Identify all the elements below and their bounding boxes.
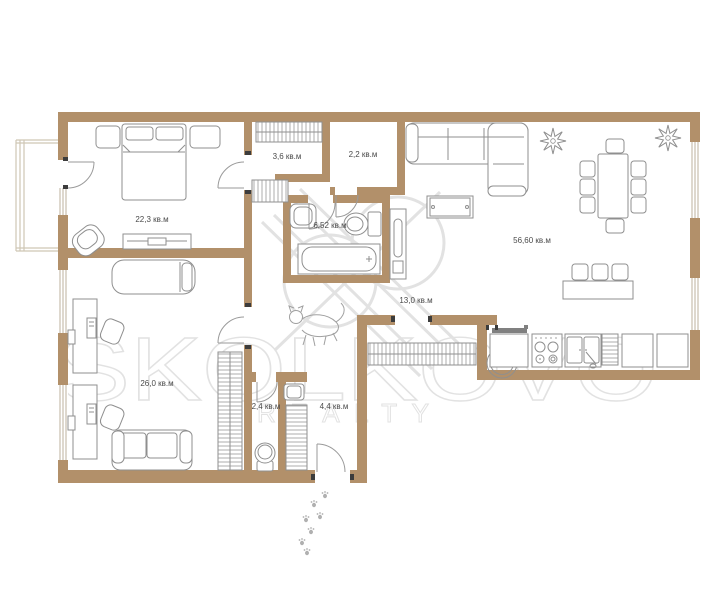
room-label-entry: 4,4 кв.м — [320, 402, 349, 411]
toilet — [344, 212, 381, 236]
window-right-1 — [690, 142, 700, 218]
window-left-1 — [58, 188, 68, 215]
wc-toilet — [255, 443, 275, 471]
bathtub — [298, 244, 380, 274]
dining-table — [598, 154, 628, 218]
bar-stools — [572, 264, 628, 280]
room-label-wardrobe-2: 2,2 кв.м — [349, 150, 378, 159]
bar-counter — [563, 281, 633, 299]
corner-sofa — [406, 123, 528, 196]
paw-prints — [299, 491, 329, 555]
drying-rack — [602, 334, 618, 365]
room-label-wardrobe-1: 3,6 кв.м — [273, 152, 302, 161]
daybed — [112, 260, 195, 294]
room-label-bedroom: 22,3 кв.м — [135, 215, 168, 224]
study-sofa — [112, 430, 192, 470]
window-left-2 — [58, 270, 68, 333]
floor-plan-canvas: SKOLKOVO REALTY — [0, 0, 720, 600]
window-left-3 — [58, 385, 68, 460]
kitchen-cabinet-1 — [622, 334, 653, 367]
entrance-door — [317, 444, 345, 472]
entry-wardrobe — [286, 405, 307, 470]
stove — [532, 334, 562, 367]
room-label-wc: 2,4 кв.м — [252, 402, 281, 411]
floor-plan: SKOLKOVO REALTY — [0, 0, 720, 600]
balcony — [16, 140, 58, 251]
pouf-right — [190, 126, 220, 148]
room-label-study: 26,0 кв.м — [140, 379, 173, 388]
fridge — [490, 325, 528, 367]
entry-sink — [284, 384, 304, 400]
kitchen-cabinet-2 — [657, 334, 688, 367]
window-right-2 — [690, 278, 700, 330]
kitchen-sink — [565, 334, 601, 368]
balcony-door — [68, 162, 94, 188]
coffee-table — [427, 196, 473, 218]
corridor-wardrobe — [252, 180, 288, 202]
living-room-furniture — [406, 123, 681, 299]
bedroom-furniture — [69, 124, 220, 259]
room-label-living-room: 56,60 кв.м — [513, 236, 551, 245]
pouf-left — [96, 126, 120, 148]
bedroom-door — [218, 162, 244, 188]
hall-cabinet — [390, 209, 406, 279]
double-bed — [122, 124, 186, 200]
room-label-bathroom: 6,52 кв.м — [313, 221, 346, 230]
plant-2 — [655, 125, 681, 151]
tv-stand — [123, 234, 191, 249]
room-label-hallway: 13,0 кв.м — [399, 296, 432, 305]
bath-sink — [290, 204, 316, 228]
plant-1 — [540, 128, 566, 154]
